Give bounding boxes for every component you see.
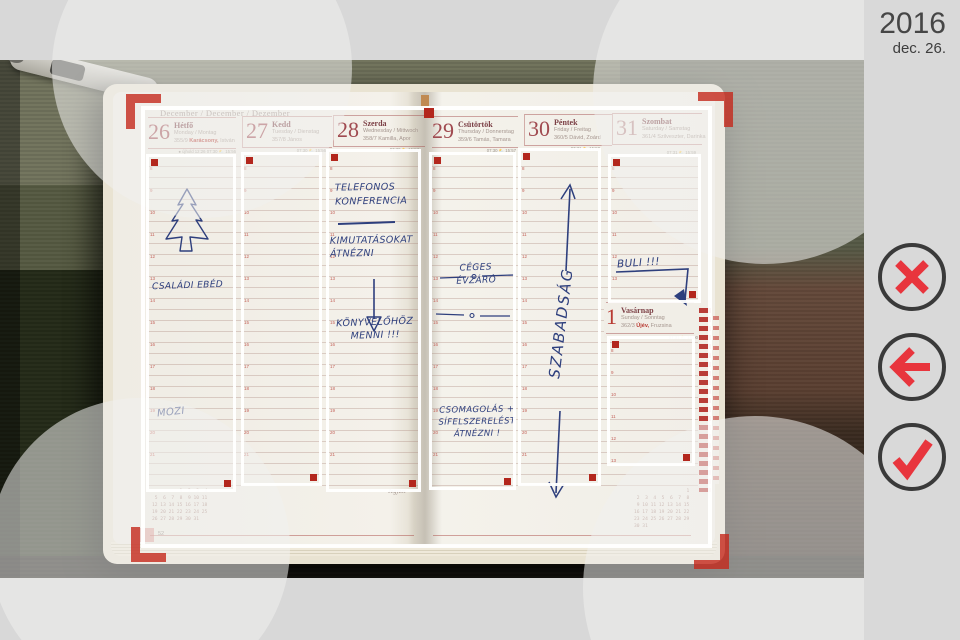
corner-bracket-top-right[interactable]: [698, 92, 733, 127]
column-detect-rect-tuesday[interactable]: [241, 152, 322, 486]
column-detect-rect-thursday[interactable]: [429, 152, 516, 490]
resize-handle-top-left[interactable]: [612, 341, 619, 348]
resize-handle-top-left[interactable]: [246, 157, 253, 164]
column-detect-rect-sunday[interactable]: [607, 336, 695, 466]
back-button[interactable]: [876, 331, 948, 403]
resize-handle-bottom-right[interactable]: [310, 474, 317, 481]
resize-handle-bottom-right[interactable]: [689, 291, 696, 298]
resize-handle-top-left[interactable]: [523, 153, 530, 160]
confirm-button[interactable]: [876, 421, 948, 493]
resize-handle-top-left[interactable]: [613, 159, 620, 166]
corner-bracket-top-left[interactable]: [126, 94, 161, 129]
capture-day: dec. 26.: [879, 40, 946, 57]
arrow-left-icon: [895, 350, 930, 384]
capture-date: 2016 dec. 26.: [879, 8, 946, 57]
resize-handle-top-left[interactable]: [151, 159, 158, 166]
corner-bracket-bottom-right[interactable]: [694, 534, 729, 569]
column-detect-rect-wednesday[interactable]: [326, 149, 421, 492]
close-icon: [898, 263, 926, 291]
resize-handle-bottom-right[interactable]: [504, 478, 511, 485]
action-sidebar: 2016 dec. 26.: [864, 0, 960, 640]
resize-handle-bottom-right[interactable]: [589, 474, 596, 481]
capture-year: 2016: [879, 8, 946, 40]
corner-bracket-bottom-left[interactable]: [131, 527, 166, 562]
gutter-top-mark[interactable]: [424, 108, 434, 118]
resize-handle-bottom-right[interactable]: [409, 480, 416, 487]
resize-handle-top-left[interactable]: [331, 154, 338, 161]
resize-handle-bottom-right[interactable]: [224, 480, 231, 487]
cancel-button[interactable]: [876, 241, 948, 313]
column-detect-rect-saturday[interactable]: [608, 154, 701, 303]
checkmark-icon: [896, 442, 929, 473]
resize-handle-top-left[interactable]: [434, 157, 441, 164]
capture-screen: December / December / Dezember 26 Hétfő …: [0, 0, 960, 640]
column-detect-rect-friday[interactable]: [518, 148, 601, 486]
resize-handle-bottom-right[interactable]: [683, 454, 690, 461]
column-detect-rect-monday[interactable]: [146, 154, 236, 492]
